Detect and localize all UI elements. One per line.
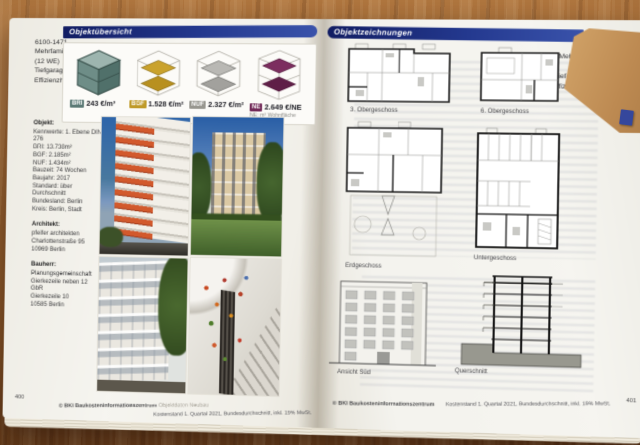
ne-unit-cube-icon [255, 49, 303, 100]
kostenstand-right: Kostenstand 1. Quartal 2021, Bundesdurch… [445, 401, 610, 408]
section-drawing [444, 271, 587, 370]
architekt-block: Architekt: pfeifer architekten Charlotte… [31, 222, 102, 255]
section-banner-objektuebersicht: Objektübersicht [63, 25, 317, 38]
plan-label: 3. Obergeschoss [350, 107, 457, 114]
plan-label: Ansicht Süd [337, 369, 438, 378]
bgf-value: 1.528 €/m² [148, 99, 184, 108]
colorful-wall-decals [188, 258, 281, 396]
section-querschnitt: Querschnitt [444, 271, 587, 378]
floorplan-drawing [470, 46, 569, 107]
objekt-line: Kreis: Berlin, Stadt [32, 206, 102, 215]
ne-value: 2.649 €/NE [264, 102, 301, 112]
objekt-line: Kennwerte: 1. Ebene DIN 276 [33, 129, 103, 145]
kostenstand-left: Kostenstand 1. Quartal 2021, Bundesdurch… [153, 410, 311, 418]
orange-awnings [114, 119, 155, 240]
section-banner-objektzeichnungen: Objektzeichnungen [327, 26, 583, 42]
plan-label: 6. Obergeschoss [481, 109, 569, 116]
plan-label: Erdgeschoss [345, 263, 452, 271]
bri-badge: BRI [70, 99, 85, 107]
elevation-drawing [327, 273, 440, 370]
nuf-badge: NUF [189, 100, 206, 108]
floorplan-drawing [335, 119, 455, 263]
blue-page-edge-tab [619, 109, 634, 125]
bgf-badge: BGF [129, 100, 146, 108]
cost-kpi-panel: BRI 243 €/m³ BGF 1.528 €/m² [62, 42, 317, 125]
photo-white-facade [97, 257, 188, 393]
floorplan-drawing [340, 42, 459, 107]
page-number-left: 400 [15, 394, 24, 400]
floorplan-6-obergeschoss: 6. Obergeschoss [470, 46, 569, 115]
copyright-text: © BKI Baukosteninformationszentrum [59, 403, 157, 409]
lawn [191, 219, 282, 257]
architekt-title: Architekt: [32, 222, 102, 231]
bauherr-line: 10585 Berlin [30, 301, 100, 310]
objekt-block: Objekt: Kennwerte: 1. Ebene DIN 276 BRI:… [32, 120, 104, 215]
page-number-right: 401 [626, 398, 636, 405]
copyright-right: © BKI Baukosteninformationszentrum [332, 401, 434, 408]
copyright-gray-text: Objektdaten Neubau [158, 403, 209, 409]
kpi-bri: BRI 243 €/m³ [70, 48, 128, 119]
bri-volume-cube-icon [75, 48, 122, 97]
floorplan-drawing [463, 127, 574, 255]
architekt-line: 10969 Berlin [31, 246, 101, 255]
bush [99, 226, 122, 247]
book-on-desk-photo: 6100-1471 Mehrfamilienhaus (12 WE) Tiefg… [0, 0, 640, 445]
ne-badge: NE [250, 103, 263, 111]
elevation-ansicht-sued: Ansicht Süd [327, 273, 440, 378]
nuf-value: 2.327 €/m² [208, 100, 244, 109]
photo-street-facade-orange-awnings [99, 117, 190, 256]
right-page-objektzeichnungen: Objektzeichnungen 6100-1471 Mehrfamilien… [317, 19, 640, 438]
photo-garden-facade [191, 117, 284, 257]
plan-label: Querschnitt [455, 368, 585, 378]
photo-staircase-decals [188, 258, 281, 396]
kpi-bgf: BGF 1.528 €/m² [129, 49, 187, 120]
bri-value: 243 €/m³ [86, 99, 115, 108]
copyright-left: © BKI Baukosteninformationszentrum Objek… [59, 403, 209, 410]
bauherr-title: Bauherr: [31, 262, 101, 271]
left-page-objektuebersicht: 6100-1471 Mehrfamilienhaus (12 WE) Tiefg… [3, 18, 325, 428]
bauherr-line: Gierkezeile neben 12 GbR [31, 278, 101, 295]
street [97, 380, 185, 393]
floorplan-3-obergeschoss: 3. Obergeschoss [340, 42, 459, 115]
floorplan-erdgeschoss: Erdgeschoss [335, 119, 455, 271]
object-info-column: Objekt: Kennwerte: 1. Ebene DIN 276 BRI:… [30, 120, 104, 319]
objekt-line: Standard: über Durchschnitt [32, 183, 102, 200]
kpi-ne: NE 2.649 €/NE NE: m² Wohnfläche [249, 49, 308, 121]
open-catalog-book: 6100-1471 Mehrfamilienhaus (12 WE) Tiefg… [3, 18, 640, 438]
objekt-title: Objekt: [33, 120, 103, 129]
bauherr-block: Bauherr: Planungsgemeinschaft Gierkezeil… [30, 262, 101, 311]
floorplan-untergeschoss: Untergeschoss [463, 127, 574, 263]
plan-label: Untergeschoss [474, 255, 572, 263]
tree-right [256, 142, 283, 223]
tree [158, 257, 188, 356]
nuf-floor-cube-icon [195, 49, 243, 98]
kpi-nuf: NUF 2.327 €/m² [189, 49, 248, 121]
bgf-floor-cube-icon [135, 49, 183, 98]
